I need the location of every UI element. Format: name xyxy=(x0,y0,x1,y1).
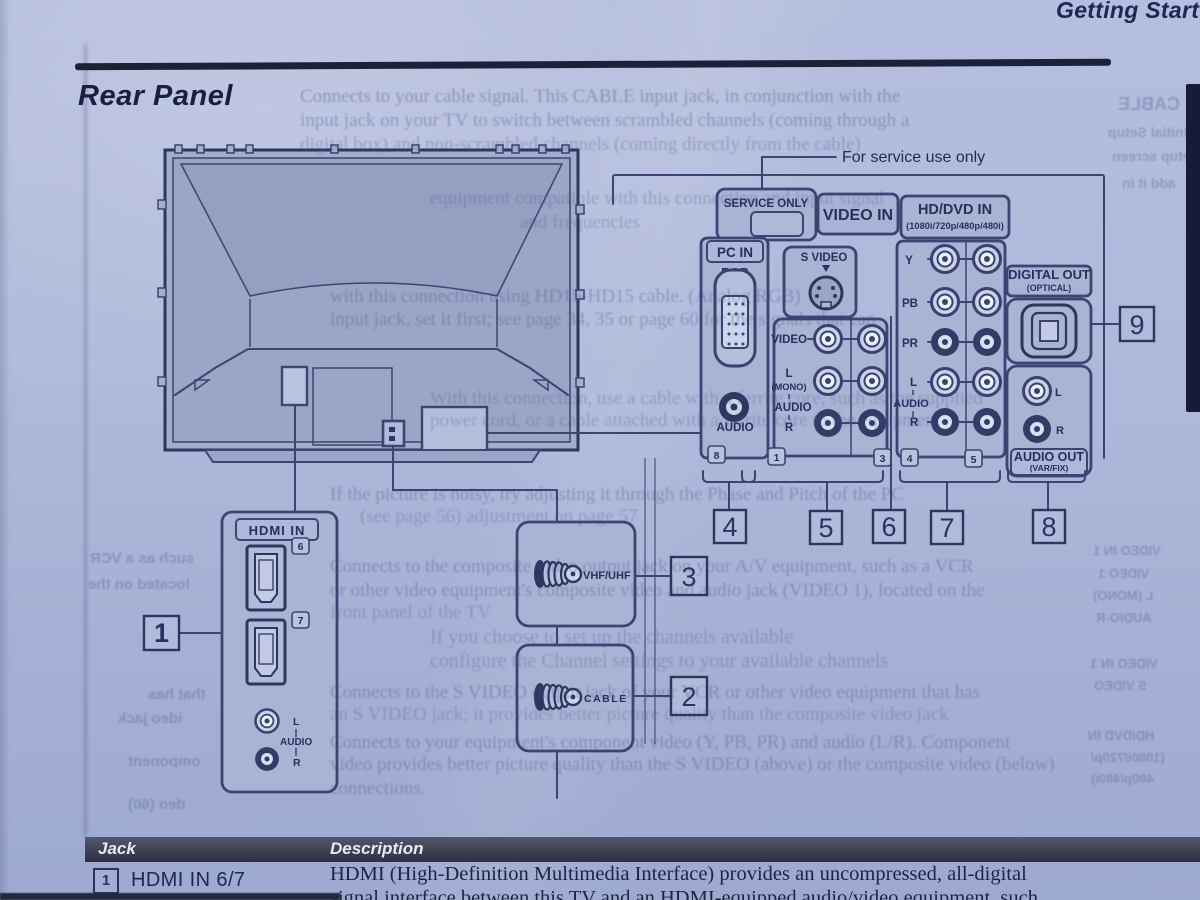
callout-9: 9 xyxy=(1120,307,1154,341)
svg-text:2: 2 xyxy=(681,682,696,712)
callout-1: 1 xyxy=(144,616,179,650)
service-note-leader xyxy=(762,157,836,189)
svg-text:6: 6 xyxy=(881,512,896,542)
service-only-label: SERVICE ONLY xyxy=(724,198,809,210)
pc-jack-tag: 8 xyxy=(714,450,720,462)
table-row-callout-number: 1 xyxy=(93,868,119,894)
svg-text:HD/DVD IN: HD/DVD IN xyxy=(918,202,992,218)
audio-l-jack-icon xyxy=(815,368,842,395)
s-video-label: S VIDEO xyxy=(801,252,848,264)
svg-text:R: R xyxy=(293,757,301,769)
hdmi-audio-l-jack-icon xyxy=(256,710,279,733)
pc-audio-label: AUDIO xyxy=(716,422,753,434)
svg-text:L: L xyxy=(1055,387,1062,399)
digital-out-panel: DIGITAL OUT (OPTICAL) xyxy=(1007,266,1091,363)
svg-text:(1080i/720p/480p/480i): (1080i/720p/480p/480i) xyxy=(906,221,1004,231)
vhf-uhf-label: VHF/UHF xyxy=(583,570,631,582)
callout-5: 5 xyxy=(810,511,842,544)
cable-label: CABLE xyxy=(584,693,628,705)
callout-3: 3 xyxy=(671,557,707,595)
digital-out-label: DIGITAL OUT xyxy=(1008,267,1090,282)
svg-text:Y: Y xyxy=(905,253,913,267)
mono-label: (MONO) xyxy=(771,382,806,392)
video1-jack-icon xyxy=(815,326,842,353)
video3-jack-icon xyxy=(859,326,886,353)
hdmi-port-7-icon xyxy=(247,620,285,684)
callout-7: 7 xyxy=(931,511,963,544)
vga-connector-icon xyxy=(715,270,755,366)
svg-text:AUDIO: AUDIO xyxy=(280,737,312,748)
video-in-label-box: VIDEO IN xyxy=(818,194,898,234)
svg-text:8: 8 xyxy=(1041,512,1056,542)
audio-r-jack-icon xyxy=(858,409,886,437)
svg-text:L: L xyxy=(910,377,917,389)
svg-text:R: R xyxy=(785,422,794,434)
svg-text:3: 3 xyxy=(880,453,886,465)
svg-text:5: 5 xyxy=(818,513,833,543)
tv-rear-illustration xyxy=(158,145,700,512)
callout-6: 6 xyxy=(873,510,905,543)
photo-bottom-edge xyxy=(0,893,340,900)
svg-text:1: 1 xyxy=(774,452,780,464)
callout-4: 4 xyxy=(714,510,746,543)
table-row-jack-name: HDMI IN 6/7 xyxy=(131,869,245,892)
service-only-panel: SERVICE ONLY xyxy=(717,189,816,240)
pc-in-panel: PC IN RGB AUDIO 8 xyxy=(701,238,768,463)
svg-text:4: 4 xyxy=(907,453,913,465)
optical-label: (OPTICAL) xyxy=(1027,283,1072,293)
manual-page-photo: Getting Started Rear Panel xyxy=(0,0,1200,900)
hdmi-audio-r-jack-icon xyxy=(255,747,279,771)
chapter-side-tab xyxy=(1186,84,1200,412)
svg-text:AUDIO: AUDIO xyxy=(893,398,929,410)
video-label: VIDEO xyxy=(771,334,807,346)
svg-text:VIDEO IN: VIDEO IN xyxy=(823,207,893,224)
table-header-bar: Jack Description xyxy=(85,837,1200,862)
hdmi-7-tag: 7 xyxy=(298,615,304,627)
svg-text:L: L xyxy=(293,716,300,728)
rear-panel-diagram: For service use only SERVICE ONLY VIDEO … xyxy=(0,0,1200,900)
video-in-panel: VIDEO L (MONO) AUDIO R 1 3 xyxy=(768,319,891,466)
svg-text:7: 7 xyxy=(939,513,954,543)
table-header-description: Description xyxy=(330,839,424,859)
hdmi-6-tag: 6 xyxy=(298,541,304,553)
table-header-jack: Jack xyxy=(98,839,136,859)
var-fix-label: (VAR/FIX) xyxy=(1030,463,1069,473)
audio-out-label: AUDIO OUT xyxy=(1014,450,1085,464)
service-note-label: For service use only xyxy=(842,149,985,166)
audio-r-jack-icon xyxy=(814,409,842,437)
svg-text:1: 1 xyxy=(154,618,169,648)
cable-panel: CABLE xyxy=(517,645,633,751)
hdmi-port-6-icon xyxy=(247,546,285,610)
s-video-panel: S VIDEO xyxy=(784,247,856,317)
page-title: Rear Panel xyxy=(78,80,233,113)
svg-text:4: 4 xyxy=(722,512,737,542)
hddvd-in-panel: Y PB PR L AUDIO R 4 5 xyxy=(893,241,1005,467)
table-row-description-line2: signal interface between this TV and an … xyxy=(330,887,1038,900)
pc-in-label: PC IN xyxy=(717,245,753,260)
table-row-description-line1: HDMI (High-Definition Multimedia Interfa… xyxy=(330,863,1027,886)
svg-text:L: L xyxy=(785,368,792,380)
hddvd-in-label-box: HD/DVD IN (1080i/720p/480p/480i) xyxy=(901,196,1009,238)
vhf-uhf-panel: VHF/UHF xyxy=(517,522,635,626)
pb-label: PB xyxy=(902,298,918,310)
svg-text:AUDIO: AUDIO xyxy=(774,402,811,414)
audio-l-jack-icon xyxy=(859,368,886,395)
svg-text:9: 9 xyxy=(1129,310,1144,340)
svg-text:R: R xyxy=(910,417,919,429)
audio-out-r-jack-icon xyxy=(1023,415,1051,443)
callout-8: 8 xyxy=(1033,510,1065,543)
pc-audio-jack-icon xyxy=(719,392,749,422)
hdmi-in-panel: HDMI IN 6 7 L AUDIO R xyxy=(222,512,337,792)
hdmi-in-label: HDMI IN xyxy=(249,523,306,538)
audio-out-l-jack-icon xyxy=(1024,378,1051,405)
svg-text:3: 3 xyxy=(681,562,696,592)
audio-out-panel: L R AUDIO OUT (VAR/FIX) xyxy=(1007,366,1091,476)
chapter-header: Getting Started xyxy=(1056,0,1200,24)
svg-text:R: R xyxy=(1056,425,1064,437)
s-video-connector-icon xyxy=(810,277,842,309)
callout-2: 2 xyxy=(671,677,707,715)
svg-text:5: 5 xyxy=(971,454,977,466)
pr-label: PR xyxy=(902,338,919,350)
